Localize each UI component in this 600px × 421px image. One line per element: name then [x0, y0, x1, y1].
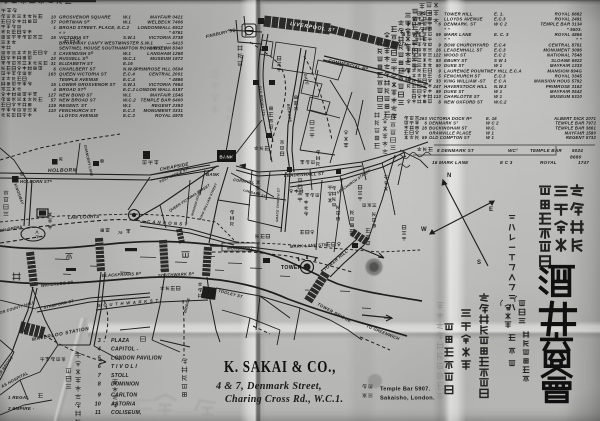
svg-text:DOMINION: DOMINION	[111, 382, 139, 388]
svg-text:11: 11	[95, 410, 101, 416]
svg-text:10: 10	[95, 401, 101, 407]
svg-text:5: 5	[98, 355, 102, 361]
svg-text:ASTORIA: ASTORIA	[110, 401, 136, 407]
svg-text:LONDON PAVILION: LONDON PAVILION	[111, 355, 162, 361]
svg-text:9: 9	[98, 393, 101, 399]
svg-text:3: 3	[98, 338, 101, 344]
svg-text:PLAZA: PLAZA	[111, 338, 129, 344]
svg-text:COLISEUM,: COLISEUM,	[111, 410, 142, 416]
svg-text:STOLL: STOLL	[111, 373, 129, 379]
svg-text:7: 7	[98, 373, 102, 379]
svg-text:4: 4	[97, 347, 101, 353]
svg-text:T I V O L I: T I V O L I	[111, 364, 137, 370]
svg-text:8: 8	[98, 382, 101, 388]
svg-text:CAPITOL -: CAPITOL -	[111, 347, 139, 353]
svg-text:6: 6	[98, 364, 102, 370]
svg-text:CARLTON: CARLTON	[111, 393, 137, 399]
